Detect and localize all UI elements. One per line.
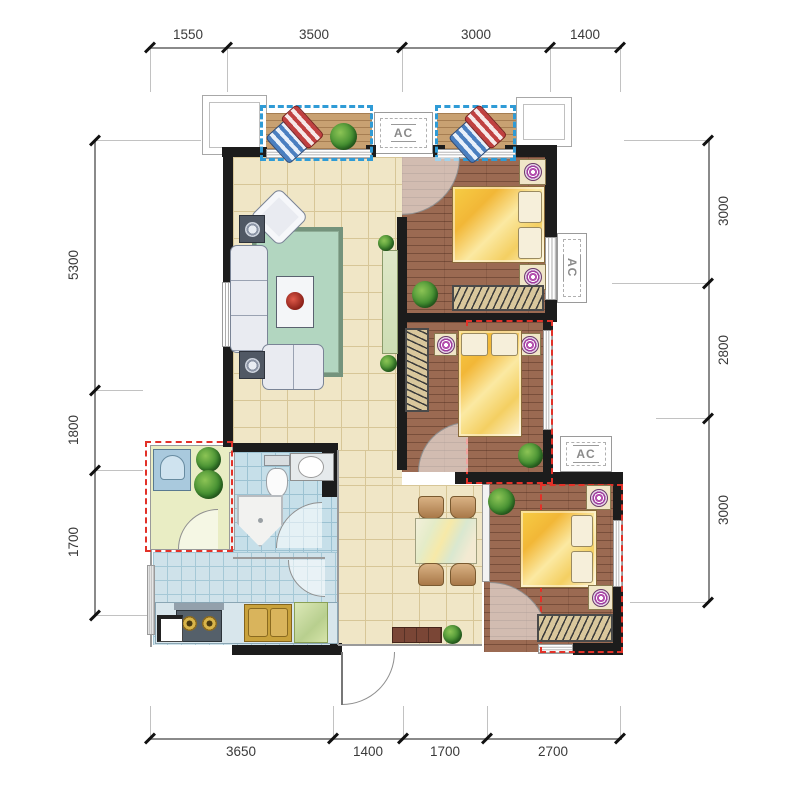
window-kitchen-left (147, 565, 155, 635)
dim-label: 1700 (66, 527, 81, 557)
shower-drain (258, 518, 263, 523)
dim-ext (402, 48, 403, 92)
sofa-long (230, 245, 268, 353)
dim-ext (403, 706, 404, 738)
wall (232, 645, 338, 655)
dim-ext (612, 283, 708, 284)
plant-bedroom2 (518, 443, 543, 468)
pillow (571, 515, 593, 547)
plant-entry (443, 625, 462, 644)
pillow (461, 333, 488, 356)
dining-chair (418, 563, 444, 586)
door-kitchen (288, 560, 325, 597)
wall (233, 443, 338, 452)
dim-ext (620, 706, 621, 738)
dim-line-bottom (148, 738, 622, 740)
dining-chair (450, 496, 476, 519)
door-entry (342, 652, 395, 705)
dim-ext (624, 140, 708, 141)
stove-burner (202, 616, 217, 631)
lamp-icon (592, 589, 610, 607)
kitchen-corner-unit (157, 615, 183, 642)
nightstand (588, 585, 613, 610)
nightstand (519, 159, 546, 185)
dim-label: 1700 (430, 744, 460, 759)
dining-chair (418, 496, 444, 519)
dim-ext (630, 602, 708, 603)
dim-ext (95, 615, 149, 616)
bay-window-top-left (202, 95, 267, 155)
plant-tv-bottom (380, 355, 397, 372)
door-laundry (178, 509, 218, 549)
plant-balcony-left (330, 123, 357, 150)
plant-tv-top (378, 235, 394, 251)
dim-ext (227, 48, 228, 92)
dim-ext (550, 48, 551, 92)
sofa-loveseat (262, 344, 324, 390)
dim-ext (620, 48, 621, 92)
dim-label: 5300 (66, 250, 81, 280)
lamp-icon (437, 336, 455, 354)
pillow (518, 191, 542, 223)
ac-label: AC (563, 255, 581, 280)
dim-line-left (94, 140, 96, 615)
dim-ext (95, 470, 143, 471)
dim-ext (150, 706, 151, 738)
wardrobe-bedroom3 (537, 614, 613, 642)
dim-label: 3000 (716, 196, 731, 226)
dim-ext (487, 706, 488, 738)
dim-line-right (708, 140, 710, 602)
dim-ext (150, 48, 151, 92)
dining-table (415, 518, 477, 564)
coffee-table-flowers (286, 292, 304, 310)
lamp-icon (524, 268, 542, 286)
table-lamp (245, 358, 260, 373)
dim-label: 3650 (226, 744, 256, 759)
dining-chair (450, 563, 476, 586)
washing-machine-door (160, 455, 185, 480)
bay-window-top-right (516, 97, 572, 147)
dim-label: 1400 (353, 744, 383, 759)
pillow (491, 333, 518, 356)
shoe-cabinet (392, 627, 442, 643)
ac-unit-top: AC (374, 112, 433, 154)
dim-ext (656, 418, 708, 419)
dim-label: 2800 (716, 335, 731, 365)
lamp-icon (521, 336, 539, 354)
dim-ext (95, 140, 201, 141)
plant-laundry-1 (196, 447, 221, 472)
cutting-board (294, 602, 328, 643)
floor-plan: 1550 3500 3000 1400 3650 1400 1700 2700 … (0, 0, 800, 800)
sink-basin (270, 608, 288, 637)
pillow (518, 227, 542, 259)
pillow (571, 551, 593, 583)
wardrobe-bedroom1 (452, 285, 544, 311)
lamp-icon (524, 163, 542, 181)
dim-ext (333, 706, 334, 738)
nightstand (586, 485, 611, 510)
dim-label: 1800 (66, 415, 81, 445)
threshold-line (338, 644, 482, 646)
sink-basin (248, 608, 268, 637)
plant-laundry-2 (194, 470, 223, 499)
lamp-icon (590, 489, 608, 507)
dim-label: 1550 (173, 27, 203, 42)
dim-label: 2700 (538, 744, 568, 759)
toilet-tank (264, 455, 290, 466)
partition-line (233, 557, 325, 559)
nightstand (434, 333, 457, 356)
window-bedroom1-right (545, 237, 557, 300)
plant-bedroom1 (412, 281, 438, 308)
dim-label: 3000 (461, 27, 491, 42)
toilet-bowl (266, 468, 288, 498)
stove-burner (182, 616, 197, 631)
stove-back-panel (174, 603, 224, 610)
ac-label: AC (391, 124, 416, 142)
ac-label: AC (573, 445, 598, 463)
side-table-lamp-bottom (239, 351, 265, 379)
dim-ext (95, 390, 143, 391)
side-table-lamp-top (239, 215, 265, 243)
ac-unit-right-lower: AC (560, 436, 612, 472)
ac-unit-right-upper: AC (557, 233, 587, 303)
wardrobe-bedroom2 (405, 328, 429, 412)
tv-cabinet (382, 250, 398, 354)
table-lamp (245, 222, 260, 237)
hallway-floor (338, 450, 402, 485)
bathroom-sink-basin (298, 456, 324, 478)
dim-label: 3500 (299, 27, 329, 42)
entry-door-leaf (341, 652, 343, 705)
plant-bedroom3 (488, 488, 515, 515)
dim-label: 1400 (570, 27, 600, 42)
dim-label: 3000 (716, 495, 731, 525)
